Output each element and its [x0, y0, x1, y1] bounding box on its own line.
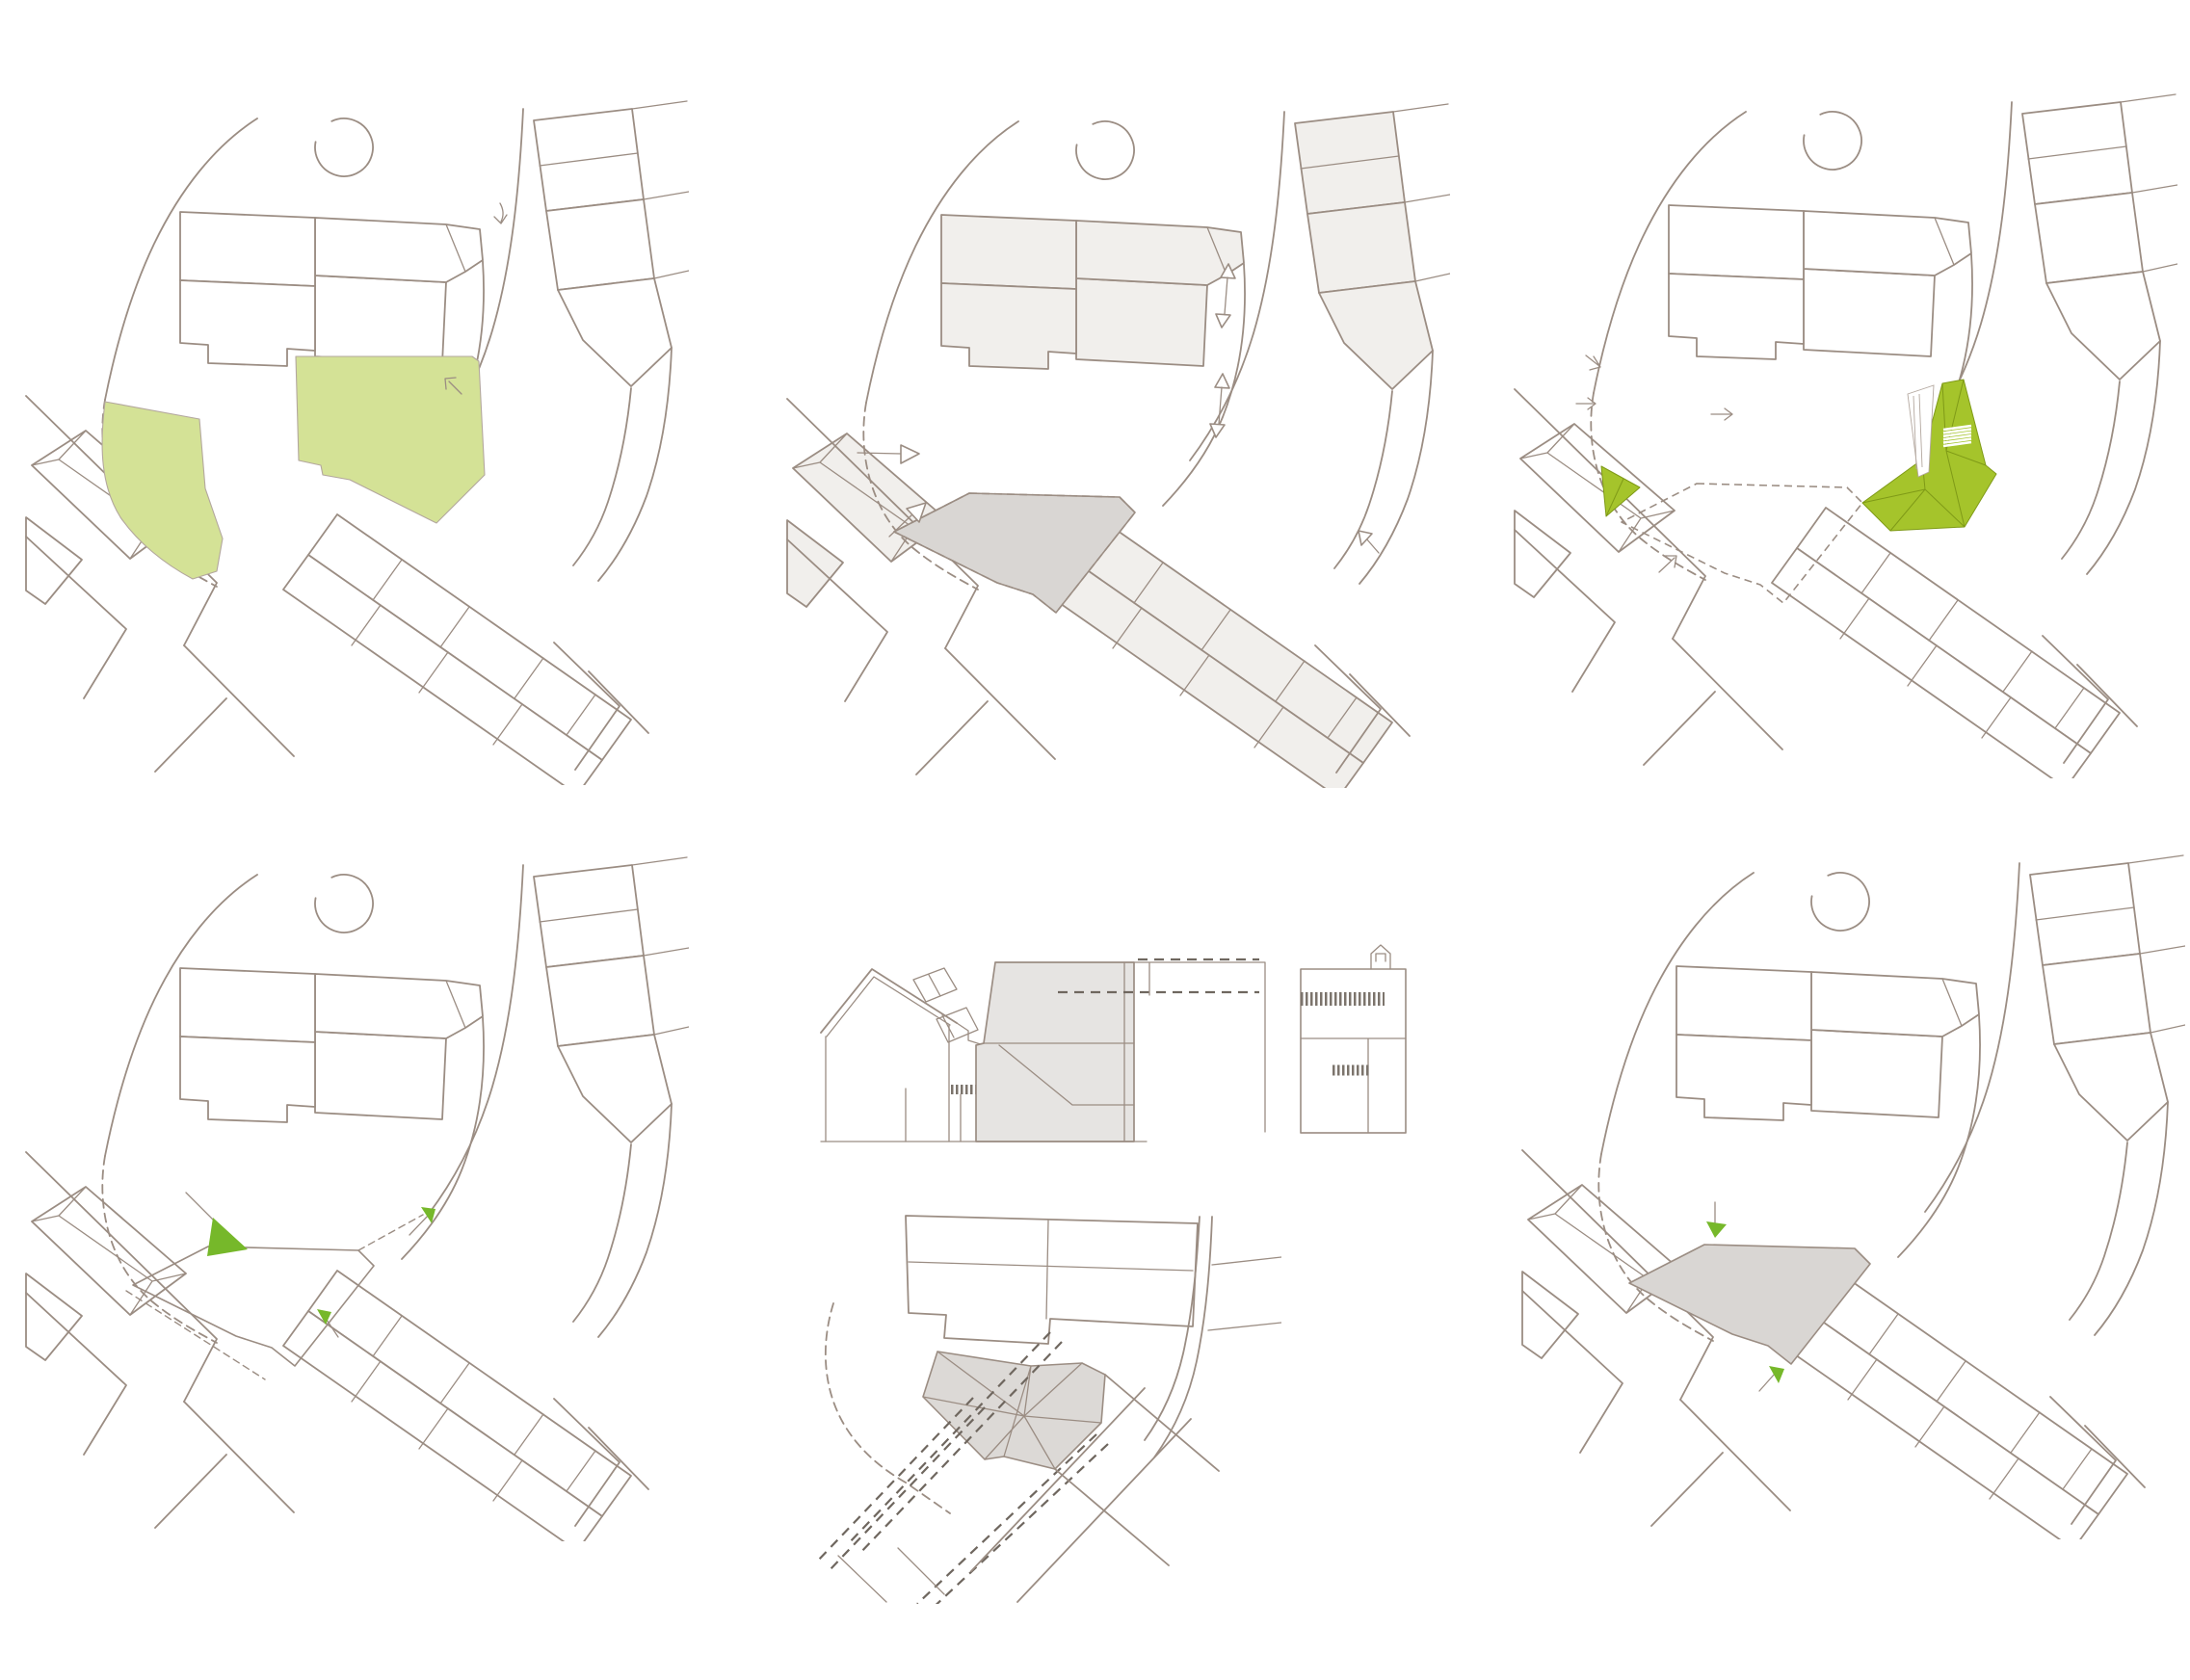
site-access-map [24, 838, 689, 1541]
panel-site-access [24, 838, 689, 1541]
base-map [1522, 855, 2185, 1539]
dormer-window [937, 1008, 978, 1042]
panel-proposed-roofscape [1513, 75, 2177, 778]
elevation-drawing [814, 915, 1508, 1156]
open-space-right [296, 356, 485, 523]
proposed-infill-mass [976, 959, 1265, 1142]
roof-plan-drawing [809, 1209, 1281, 1604]
corner-arrow-icon [1359, 531, 1379, 553]
panel-figure-ground-footprint [785, 85, 1450, 788]
roofscape-map [1513, 75, 2177, 778]
dormer-window [913, 968, 957, 1002]
open-space-left [102, 402, 223, 579]
diagram-sheet [0, 0, 2190, 1680]
footprint-map [785, 85, 1450, 788]
panel-open-spaces [24, 82, 689, 785]
base-map [1515, 94, 2177, 778]
footprint-access-map [1520, 836, 2185, 1539]
stepped-flat-roof-building [1301, 945, 1406, 1133]
open-space-areas [102, 356, 485, 579]
green-entry-arrow-large [207, 1218, 248, 1256]
base-map [26, 857, 689, 1541]
roof-stack [1371, 945, 1390, 969]
gabled-house [821, 968, 997, 1142]
neighbor-block [906, 1216, 1198, 1344]
base-map-gray-blocks [787, 104, 1450, 788]
green-entry-arrow-north [1706, 1221, 1727, 1238]
green-entry-arrow-south [1769, 1366, 1784, 1383]
panel-roof-plan [809, 1209, 1281, 1604]
dashed-site-boundary [826, 1303, 950, 1513]
open-spaces-map [24, 82, 689, 785]
two-way-street-arrow-icons [1210, 264, 1235, 437]
panel-footprint-access [1520, 836, 2185, 1539]
panel-street-elevation [814, 915, 1508, 1156]
